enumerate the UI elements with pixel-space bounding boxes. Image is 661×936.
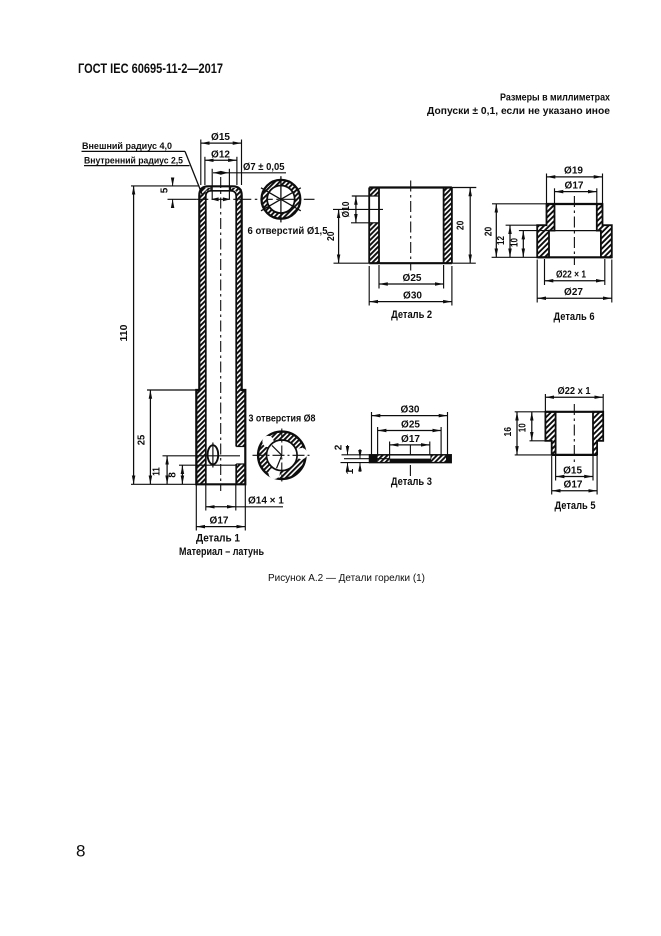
svg-text:Ø17: Ø17 xyxy=(401,434,420,445)
svg-text:Ø25: Ø25 xyxy=(403,273,422,284)
svg-text:Ø15: Ø15 xyxy=(211,132,230,143)
svg-text:1: 1 xyxy=(345,468,356,474)
svg-text:Внешний радиус 4,0: Внешний радиус 4,0 xyxy=(82,141,172,152)
svg-text:16: 16 xyxy=(503,427,514,437)
svg-text:Ø22 x 1: Ø22 x 1 xyxy=(558,386,591,397)
svg-text:Ø30: Ø30 xyxy=(403,291,422,302)
svg-text:Ø22 × 1: Ø22 × 1 xyxy=(556,270,586,281)
svg-text:5: 5 xyxy=(160,187,171,193)
svg-text:Внутренний радиус 2,5: Внутренний радиус 2,5 xyxy=(84,155,184,166)
svg-text:Деталь 3: Деталь 3 xyxy=(391,476,432,488)
svg-text:Ø17: Ø17 xyxy=(565,180,584,191)
svg-text:11: 11 xyxy=(152,467,163,476)
svg-text:20: 20 xyxy=(456,220,467,230)
svg-text:20: 20 xyxy=(484,226,495,236)
svg-text:Ø15: Ø15 xyxy=(563,465,582,476)
svg-text:Деталь 1: Деталь 1 xyxy=(196,533,240,545)
svg-text:Материал – латунь: Материал – латунь xyxy=(179,546,264,558)
svg-text:Ø17: Ø17 xyxy=(210,516,229,527)
svg-text:Деталь 6: Деталь 6 xyxy=(554,311,595,323)
svg-text:Размеры в миллиметрах: Размеры в миллиметрах xyxy=(500,93,610,104)
svg-text:Рисунок А.2 — Детали горелки (: Рисунок А.2 — Детали горелки (1) xyxy=(268,572,425,584)
svg-text:Допуски ± 0,1, если не указано: Допуски ± 0,1, если не указано иное xyxy=(427,106,610,117)
svg-text:8: 8 xyxy=(76,842,85,861)
svg-text:25: 25 xyxy=(137,434,148,445)
svg-text:Ø10: Ø10 xyxy=(341,201,352,217)
svg-text:20: 20 xyxy=(326,231,337,241)
svg-text:Ø19: Ø19 xyxy=(564,166,583,177)
svg-text:8: 8 xyxy=(167,472,178,478)
svg-text:110: 110 xyxy=(119,324,130,341)
svg-text:2: 2 xyxy=(334,444,345,450)
svg-text:Ø7 ± 0,05: Ø7 ± 0,05 xyxy=(243,162,285,173)
svg-text:Деталь 5: Деталь 5 xyxy=(555,500,596,512)
svg-text:12: 12 xyxy=(496,236,507,245)
svg-text:Ø12: Ø12 xyxy=(211,150,230,161)
svg-text:Ø30: Ø30 xyxy=(401,405,420,416)
svg-text:Ø25: Ø25 xyxy=(401,419,420,430)
svg-text:Ø14 × 1: Ø14 × 1 xyxy=(248,496,284,507)
svg-text:10: 10 xyxy=(518,423,529,432)
svg-text:ГОСТ IEC 60695-11-2—2017: ГОСТ IEC 60695-11-2—2017 xyxy=(78,61,223,76)
svg-text:Ø27: Ø27 xyxy=(564,287,583,298)
svg-text:3 отверстия Ø8: 3 отверстия Ø8 xyxy=(249,414,316,425)
svg-text:Деталь 2: Деталь 2 xyxy=(391,309,432,321)
svg-text:6 отверстий Ø1,5: 6 отверстий Ø1,5 xyxy=(248,226,328,237)
svg-text:10: 10 xyxy=(510,238,521,247)
svg-text:Ø17: Ø17 xyxy=(564,480,583,491)
